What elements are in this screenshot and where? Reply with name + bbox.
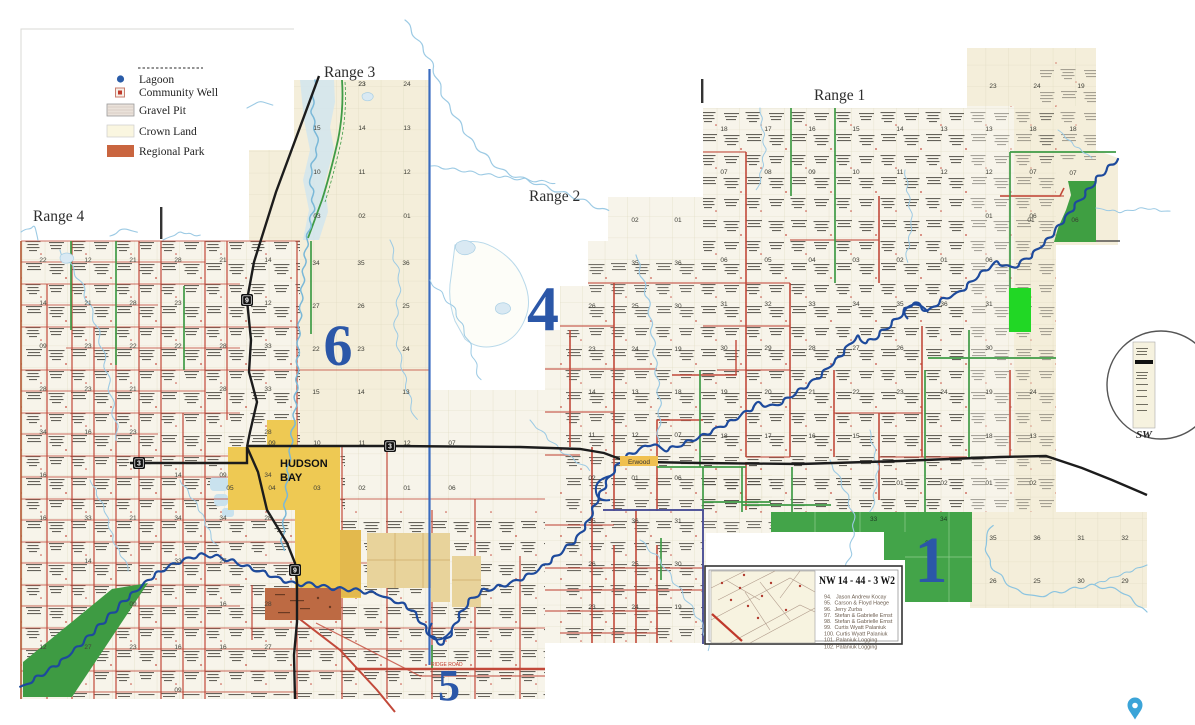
svg-text:09: 09 <box>219 472 227 479</box>
svg-text:26: 26 <box>896 345 904 352</box>
svg-text:23: 23 <box>588 604 596 611</box>
svg-text:01: 01 <box>985 480 993 487</box>
svg-text:33: 33 <box>84 515 92 522</box>
svg-text:Crown Land: Crown Land <box>139 126 197 138</box>
svg-text:26: 26 <box>989 578 997 585</box>
svg-text:1: 1 <box>915 524 948 597</box>
svg-text:Range 3: Range 3 <box>324 64 375 81</box>
svg-text:12: 12 <box>403 169 411 176</box>
svg-text:28: 28 <box>174 257 182 264</box>
svg-text:35: 35 <box>896 301 904 308</box>
svg-text:16: 16 <box>174 644 182 651</box>
svg-text:Community Well: Community Well <box>139 87 218 99</box>
svg-text:35: 35 <box>357 260 365 267</box>
svg-text:23: 23 <box>129 429 137 436</box>
svg-text:02: 02 <box>588 475 596 482</box>
svg-text:20: 20 <box>764 389 772 396</box>
svg-text:11: 11 <box>359 440 366 447</box>
svg-text:27: 27 <box>219 558 227 565</box>
svg-text:14: 14 <box>358 125 366 132</box>
svg-text:33: 33 <box>264 386 272 393</box>
svg-text:14: 14 <box>174 472 182 479</box>
svg-text:Range 4: Range 4 <box>33 208 84 225</box>
svg-text:15: 15 <box>852 126 860 133</box>
svg-text:33: 33 <box>174 558 182 565</box>
svg-text:07: 07 <box>1029 169 1037 176</box>
svg-text:23: 23 <box>588 346 596 353</box>
svg-text:36: 36 <box>631 518 639 525</box>
svg-text:13: 13 <box>402 389 410 396</box>
svg-text:35: 35 <box>631 260 639 267</box>
svg-text:23: 23 <box>174 300 182 307</box>
svg-text:31: 31 <box>1077 535 1085 542</box>
svg-text:05: 05 <box>764 257 772 264</box>
svg-text:26: 26 <box>588 561 596 568</box>
svg-text:04: 04 <box>808 257 816 264</box>
svg-text:23: 23 <box>357 346 365 353</box>
svg-text:96. Jerry Zurba: 96. Jerry Zurba <box>824 607 862 613</box>
svg-text:14: 14 <box>84 558 92 565</box>
svg-text:13: 13 <box>985 126 993 133</box>
svg-text:26: 26 <box>357 303 365 310</box>
svg-text:25: 25 <box>1033 578 1041 585</box>
svg-text:16: 16 <box>219 601 227 608</box>
svg-text:02: 02 <box>1029 480 1037 487</box>
svg-text:16: 16 <box>39 515 47 522</box>
svg-text:Regional Park: Regional Park <box>139 146 205 158</box>
svg-text:23: 23 <box>84 386 92 393</box>
svg-text:06: 06 <box>674 475 682 482</box>
svg-text:23: 23 <box>129 644 137 651</box>
svg-text:21: 21 <box>808 389 816 396</box>
svg-text:01: 01 <box>403 213 411 220</box>
svg-text:09: 09 <box>39 343 47 350</box>
svg-text:23: 23 <box>989 83 997 90</box>
svg-text:28: 28 <box>264 601 272 608</box>
svg-text:03: 03 <box>852 257 860 264</box>
svg-text:16: 16 <box>84 429 92 436</box>
svg-text:34: 34 <box>219 515 227 522</box>
svg-text:14: 14 <box>357 389 365 396</box>
svg-text:34: 34 <box>264 472 272 479</box>
svg-text:27: 27 <box>312 303 320 310</box>
svg-text:100. Curtis Wyatt Palaniuk: 100. Curtis Wyatt Palaniuk <box>824 631 888 637</box>
svg-text:18: 18 <box>985 433 993 440</box>
svg-text:01: 01 <box>674 217 682 224</box>
svg-text:01: 01 <box>631 475 639 482</box>
svg-text:28: 28 <box>264 429 272 436</box>
svg-text:09: 09 <box>808 169 816 176</box>
svg-text:12: 12 <box>84 257 92 264</box>
svg-text:36: 36 <box>674 260 682 267</box>
svg-text:36: 36 <box>402 260 410 267</box>
svg-text:28: 28 <box>39 386 47 393</box>
svg-text:11: 11 <box>589 432 596 439</box>
svg-text:24: 24 <box>402 346 410 353</box>
svg-text:101. Palaniuk Logging: 101. Palaniuk Logging <box>824 638 877 644</box>
svg-text:28: 28 <box>808 345 816 352</box>
svg-text:01: 01 <box>896 480 904 487</box>
svg-text:18: 18 <box>720 126 728 133</box>
svg-text:31: 31 <box>985 301 993 308</box>
svg-text:06: 06 <box>448 485 456 492</box>
svg-text:10: 10 <box>313 169 321 176</box>
svg-text:13: 13 <box>940 126 948 133</box>
svg-text:16: 16 <box>39 472 47 479</box>
svg-text:18: 18 <box>720 433 728 440</box>
svg-text:Lagoon: Lagoon <box>139 74 174 86</box>
svg-text:15: 15 <box>313 125 321 132</box>
svg-text:03: 03 <box>313 213 321 220</box>
svg-text:34: 34 <box>852 301 860 308</box>
svg-text:14: 14 <box>39 300 47 307</box>
svg-text:Gravel Pit: Gravel Pit <box>139 105 187 117</box>
svg-text:16: 16 <box>219 644 227 651</box>
svg-text:01: 01 <box>1027 217 1035 224</box>
svg-text:24: 24 <box>940 389 948 396</box>
svg-text:17: 17 <box>764 433 772 440</box>
svg-text:21: 21 <box>84 300 92 307</box>
svg-text:BAY: BAY <box>280 472 303 484</box>
svg-text:14: 14 <box>264 257 272 264</box>
svg-text:36: 36 <box>1033 535 1041 542</box>
svg-text:12: 12 <box>985 169 993 176</box>
svg-text:22: 22 <box>852 389 860 396</box>
svg-text:13: 13 <box>631 389 639 396</box>
svg-text:32: 32 <box>1121 535 1129 542</box>
svg-text:5: 5 <box>438 661 460 710</box>
svg-text:18: 18 <box>1069 126 1077 133</box>
svg-text:14: 14 <box>588 389 596 396</box>
svg-text:22: 22 <box>129 343 137 350</box>
svg-text:28: 28 <box>219 386 227 393</box>
svg-text:02: 02 <box>940 480 948 487</box>
svg-text:06: 06 <box>1071 217 1079 224</box>
svg-text:35: 35 <box>989 535 997 542</box>
svg-text:29: 29 <box>1121 578 1129 585</box>
svg-text:11: 11 <box>359 169 366 176</box>
svg-text:12: 12 <box>631 432 639 439</box>
svg-text:14: 14 <box>896 126 904 133</box>
svg-text:25: 25 <box>631 561 639 568</box>
svg-text:19: 19 <box>720 389 728 396</box>
svg-text:23: 23 <box>84 343 92 350</box>
svg-text:21: 21 <box>219 257 227 264</box>
svg-text:10: 10 <box>852 169 860 176</box>
svg-text:NW 14 - 44 - 3 W2: NW 14 - 44 - 3 W2 <box>819 573 895 587</box>
svg-text:25: 25 <box>402 303 410 310</box>
svg-text:09: 09 <box>268 440 276 447</box>
svg-text:22: 22 <box>39 257 47 264</box>
svg-text:07: 07 <box>1069 170 1077 177</box>
svg-text:19: 19 <box>985 389 993 396</box>
svg-text:36: 36 <box>940 301 948 308</box>
svg-text:9: 9 <box>293 568 297 575</box>
svg-text:13: 13 <box>403 125 411 132</box>
svg-text:24: 24 <box>631 604 639 611</box>
svg-text:35: 35 <box>588 518 596 525</box>
svg-text:21: 21 <box>129 515 137 522</box>
svg-text:3: 3 <box>137 461 141 468</box>
svg-text:06: 06 <box>720 257 728 264</box>
svg-text:19: 19 <box>1077 83 1085 90</box>
svg-text:07: 07 <box>448 440 456 447</box>
svg-text:34: 34 <box>39 429 47 436</box>
svg-text:34: 34 <box>312 260 320 267</box>
svg-text:19: 19 <box>674 346 682 353</box>
svg-text:SW: SW <box>1136 429 1153 441</box>
svg-text:01: 01 <box>403 485 411 492</box>
svg-text:05: 05 <box>226 485 234 492</box>
svg-text:30: 30 <box>985 345 993 352</box>
svg-text:6: 6 <box>324 313 353 378</box>
svg-text:07: 07 <box>720 169 728 176</box>
svg-text:22: 22 <box>312 346 320 353</box>
svg-text:94. Jason Andrew Kocay: 94. Jason Andrew Kocay <box>824 595 887 601</box>
svg-text:02: 02 <box>896 257 904 264</box>
svg-text:17: 17 <box>764 126 772 133</box>
svg-text:26: 26 <box>588 303 596 310</box>
svg-text:02: 02 <box>358 213 366 220</box>
svg-text:23: 23 <box>896 389 904 396</box>
svg-text:95. Carson & Floyd Haege: 95. Carson & Floyd Haege <box>824 601 889 607</box>
svg-text:12: 12 <box>403 440 411 447</box>
svg-text:23: 23 <box>358 81 366 88</box>
svg-text:19: 19 <box>674 604 682 611</box>
svg-text:102. Palaniuk Logging: 102. Palaniuk Logging <box>824 645 877 651</box>
svg-text:11: 11 <box>897 169 904 176</box>
svg-text:21: 21 <box>129 386 137 393</box>
svg-text:Range 2: Range 2 <box>529 188 580 205</box>
svg-text:18: 18 <box>674 389 682 396</box>
svg-text:34: 34 <box>174 515 182 522</box>
svg-text:30: 30 <box>674 303 682 310</box>
svg-text:29: 29 <box>764 345 772 352</box>
svg-text:24: 24 <box>1033 83 1041 90</box>
svg-text:12: 12 <box>264 300 272 307</box>
svg-text:RIDGE ROAD: RIDGE ROAD <box>431 662 463 668</box>
svg-text:30: 30 <box>674 561 682 568</box>
svg-text:Range 1: Range 1 <box>814 87 865 104</box>
svg-text:4: 4 <box>527 273 559 344</box>
svg-text:31: 31 <box>720 301 728 308</box>
svg-text:09: 09 <box>174 687 182 694</box>
svg-text:33: 33 <box>264 343 272 350</box>
svg-text:16: 16 <box>808 433 816 440</box>
svg-text:04: 04 <box>268 485 276 492</box>
svg-text:12: 12 <box>940 169 948 176</box>
svg-text:28: 28 <box>129 300 137 307</box>
svg-text:31: 31 <box>674 518 682 525</box>
svg-text:HUDSON: HUDSON <box>280 458 328 470</box>
svg-text:02: 02 <box>358 485 366 492</box>
svg-text:18: 18 <box>1029 126 1037 133</box>
svg-text:13: 13 <box>1029 433 1037 440</box>
svg-text:24: 24 <box>631 346 639 353</box>
svg-text:32: 32 <box>764 301 772 308</box>
svg-text:Erwood: Erwood <box>628 459 650 466</box>
svg-text:25: 25 <box>631 303 639 310</box>
svg-text:24: 24 <box>1029 389 1037 396</box>
svg-text:27: 27 <box>852 345 860 352</box>
svg-text:02: 02 <box>631 217 639 224</box>
svg-text:12: 12 <box>39 644 47 651</box>
svg-text:33: 33 <box>870 516 878 523</box>
svg-text:15: 15 <box>852 433 860 440</box>
svg-text:24: 24 <box>403 81 411 88</box>
svg-text:07: 07 <box>674 432 682 439</box>
svg-text:33: 33 <box>808 301 816 308</box>
svg-text:98. Stefan & Gabrielle Ernst: 98. Stefan & Gabrielle Ernst <box>824 619 893 625</box>
svg-text:9: 9 <box>245 298 249 305</box>
svg-text:97. Stefan & Gabrielle Ernst: 97. Stefan & Gabrielle Ernst <box>824 613 893 619</box>
svg-text:03: 03 <box>313 485 321 492</box>
svg-text:21: 21 <box>129 257 137 264</box>
svg-text:01: 01 <box>940 257 948 264</box>
svg-text:30: 30 <box>1077 578 1085 585</box>
svg-text:27: 27 <box>84 644 92 651</box>
svg-text:99. Curtis Wyatt Palaniuk: 99. Curtis Wyatt Palaniuk <box>824 625 886 631</box>
svg-text:10: 10 <box>313 440 321 447</box>
svg-text:08: 08 <box>764 169 772 176</box>
svg-text:27: 27 <box>264 644 272 651</box>
svg-text:06: 06 <box>985 257 993 264</box>
svg-text:28: 28 <box>219 343 227 350</box>
svg-text:30: 30 <box>720 345 728 352</box>
svg-text:22: 22 <box>174 343 182 350</box>
svg-text:28: 28 <box>264 515 272 522</box>
svg-text:16: 16 <box>808 126 816 133</box>
svg-text:34: 34 <box>940 516 948 523</box>
svg-text:3: 3 <box>388 444 392 451</box>
svg-text:15: 15 <box>312 389 320 396</box>
svg-text:01: 01 <box>985 213 993 220</box>
svg-text:09: 09 <box>129 601 137 608</box>
